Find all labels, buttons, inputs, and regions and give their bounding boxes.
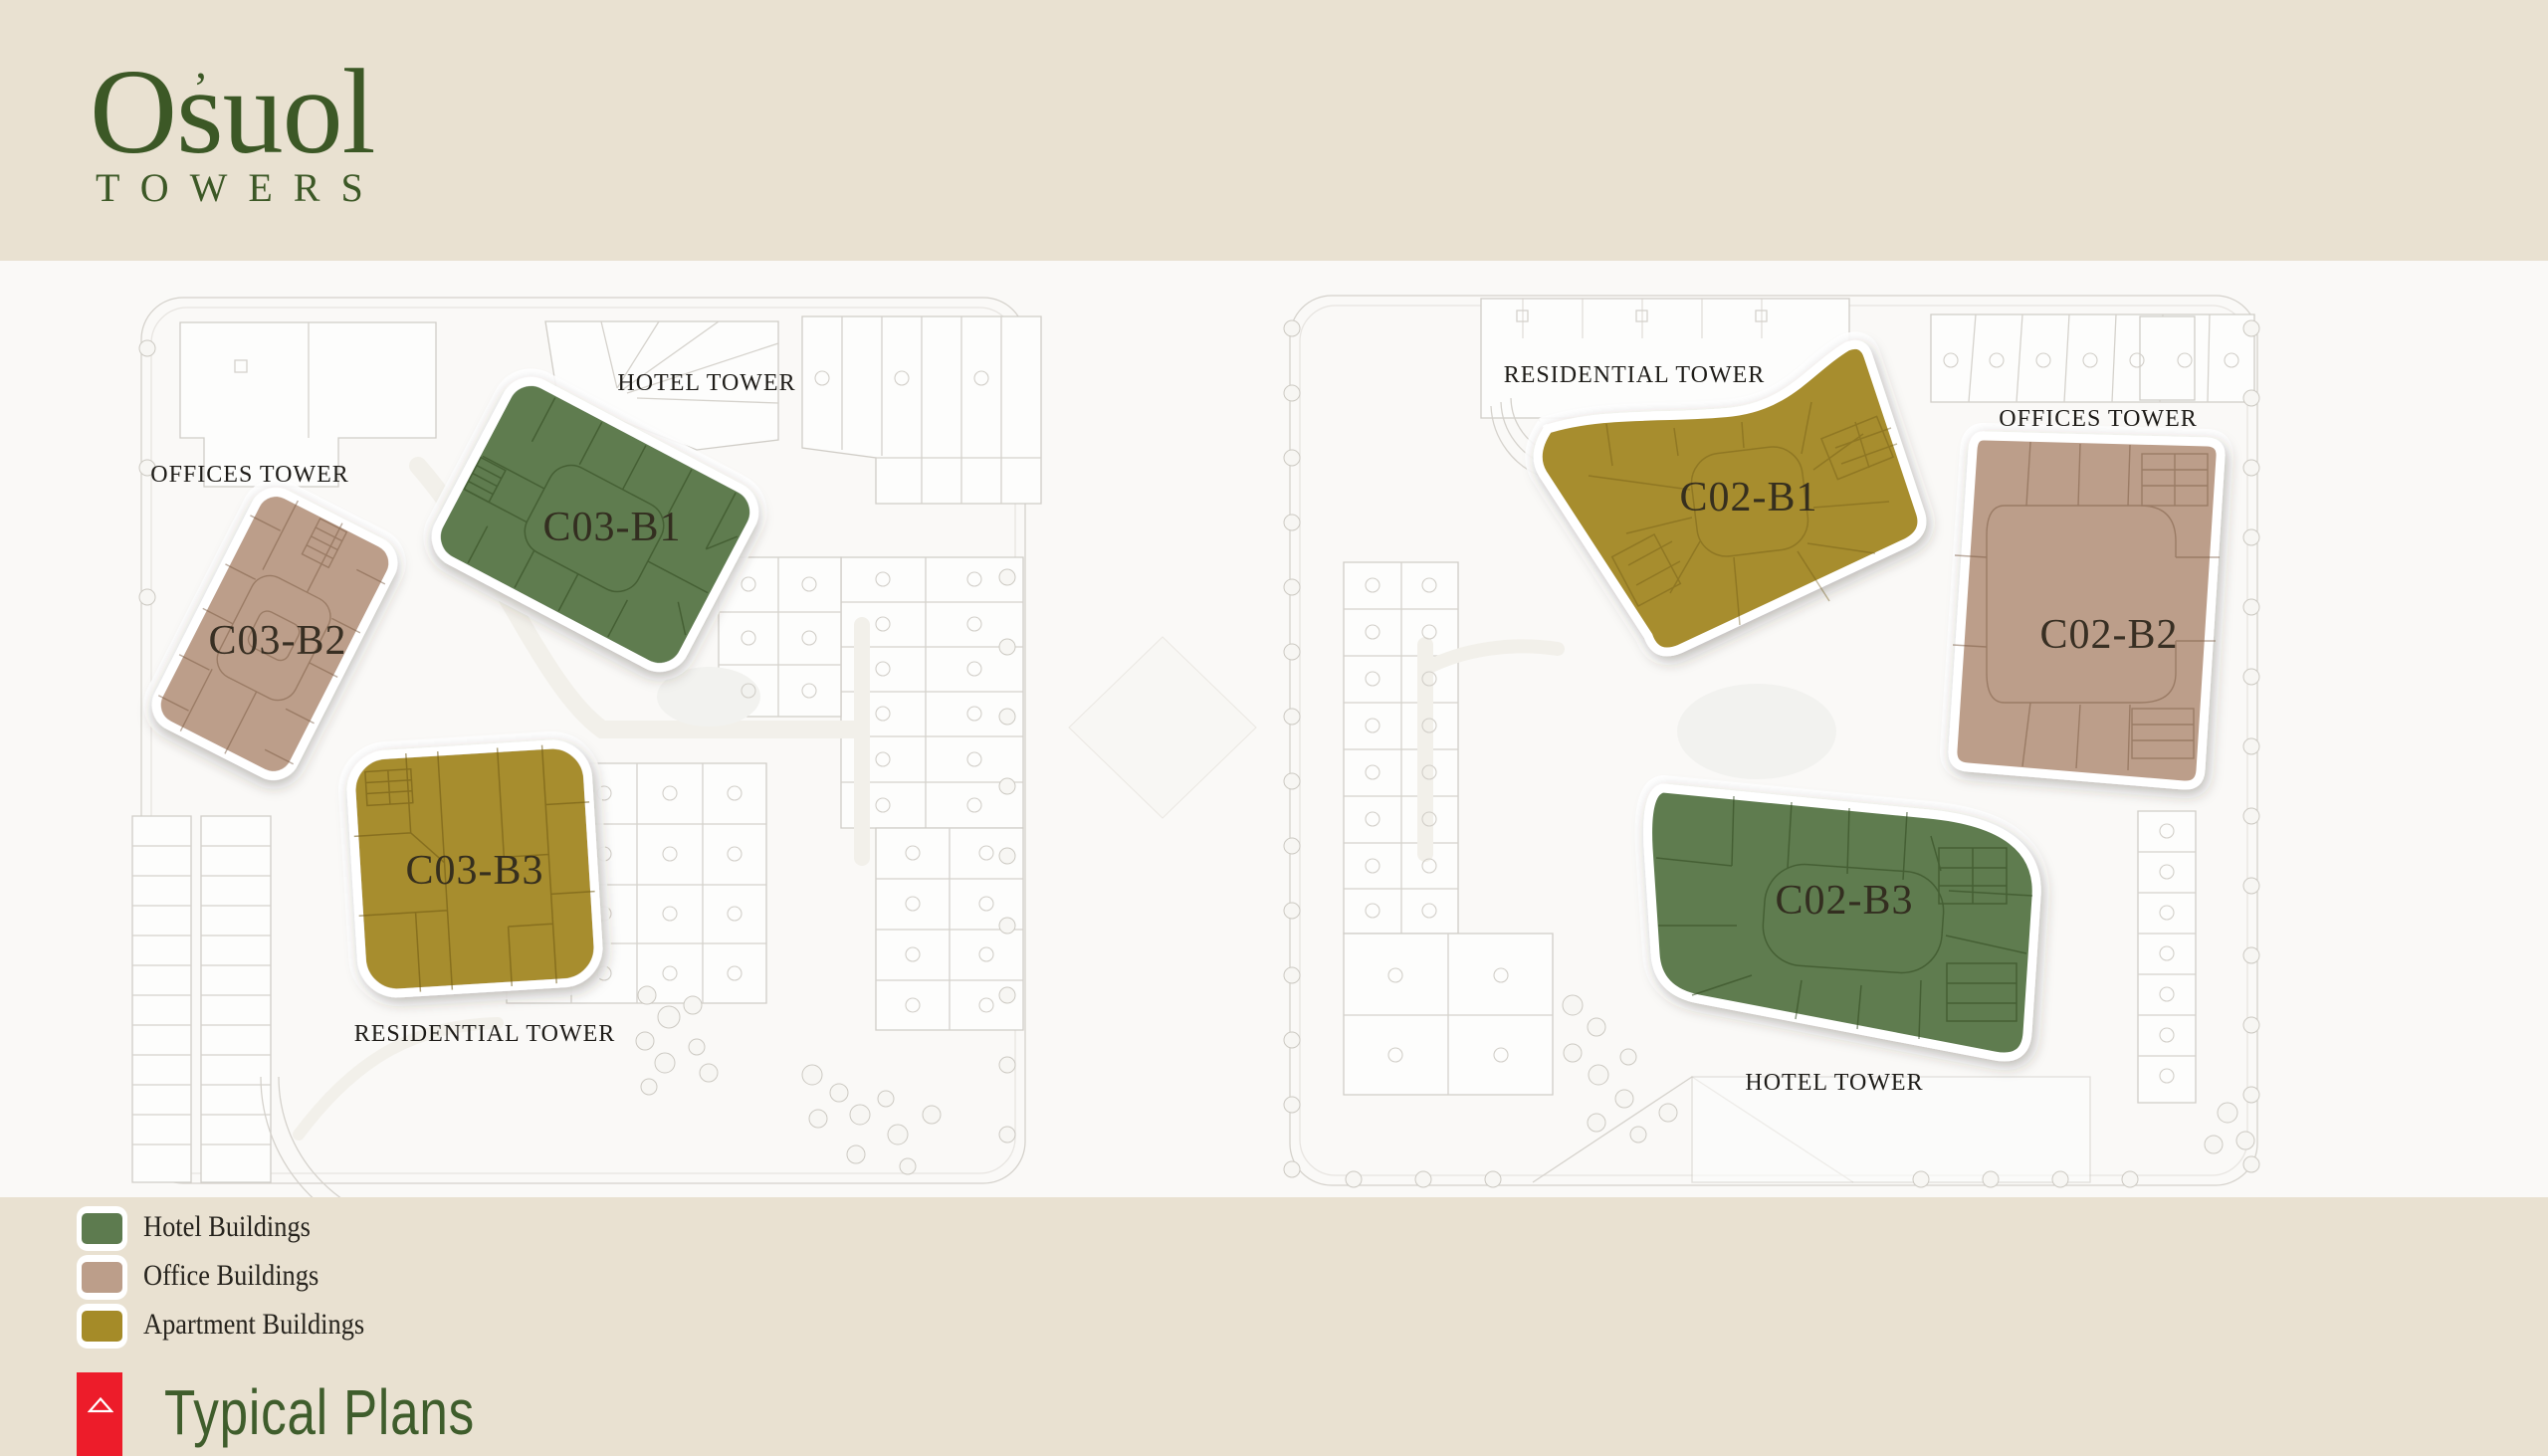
svg-text:C02-B2: C02-B2	[2039, 612, 2178, 658]
svg-text:OFFICES TOWER: OFFICES TOWER	[150, 462, 348, 488]
svg-text:RESIDENTIAL TOWER: RESIDENTIAL TOWER	[1504, 362, 1766, 388]
svg-text:HOTEL TOWER: HOTEL TOWER	[1745, 1070, 1923, 1096]
svg-text:HOTEL TOWER: HOTEL TOWER	[617, 370, 795, 396]
svg-text:C03-B3: C03-B3	[405, 848, 543, 894]
svg-text:C03-B2: C03-B2	[208, 618, 346, 664]
svg-text:C02-B1: C02-B1	[1679, 475, 1817, 520]
svg-text:OFFICES TOWER: OFFICES TOWER	[1999, 406, 2197, 432]
svg-text:C02-B3: C02-B3	[1775, 878, 1913, 924]
svg-text:C03-B1: C03-B1	[542, 505, 681, 550]
svg-text:RESIDENTIAL TOWER: RESIDENTIAL TOWER	[354, 1021, 616, 1047]
